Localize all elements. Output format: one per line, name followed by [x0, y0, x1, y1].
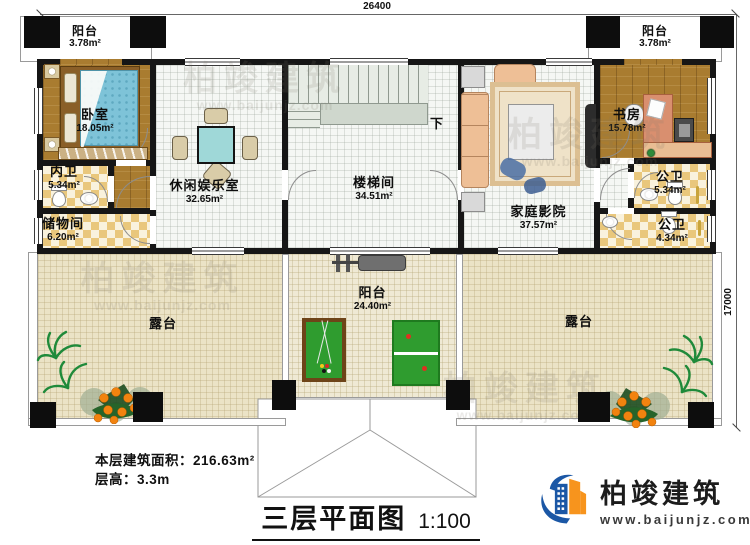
pool-table [302, 318, 346, 382]
stair-treads-lower [288, 103, 320, 128]
chair [242, 136, 258, 160]
room-label-storage: 储物间6.20m² [33, 217, 93, 243]
side-table [461, 66, 485, 88]
column [578, 392, 610, 422]
roof-outline [252, 396, 482, 500]
room-label-main-balcony: 阳台24.40m² [330, 286, 415, 312]
door-opening [60, 59, 122, 65]
window [707, 170, 716, 200]
room-label-public-bath-1: 公卫5.34m² [642, 170, 698, 196]
floor-height-line: 层高：3.3m [95, 468, 170, 488]
window [34, 88, 43, 134]
brand-logo-icon [538, 470, 592, 528]
dimension-right-value: 17000 [723, 272, 737, 332]
door-opening [624, 59, 682, 65]
column [30, 402, 56, 428]
room-label-terrace-left: 露台 [133, 317, 193, 332]
room-label-ensuite-bath: 内卫5.34m² [42, 165, 86, 191]
barbell-bar [332, 261, 360, 264]
window [707, 216, 716, 242]
column [688, 402, 714, 428]
drawing-title-text: 三层平面图 [261, 497, 406, 536]
wall [37, 208, 156, 214]
room-label-stairwell: 楼梯间34.51m² [334, 176, 414, 202]
ping-pong-table [392, 320, 440, 386]
window [546, 58, 592, 66]
brand-url: www.baijunjz.com [600, 512, 750, 527]
sink [602, 216, 618, 228]
sink [80, 192, 98, 205]
dimension-line-top [40, 14, 736, 15]
sofa [461, 92, 489, 188]
stair-landing [320, 103, 428, 125]
stair-treads [288, 65, 428, 105]
window [707, 78, 716, 134]
ping-pong-ball [406, 334, 411, 339]
wardrobe [58, 147, 148, 160]
floor-height-value: 3.3m [137, 472, 170, 487]
stairs-down-label: 下 [430, 113, 443, 132]
coffee-table [508, 104, 554, 160]
floor-area-value: 216.63m² [193, 453, 255, 468]
window [192, 247, 244, 255]
toilet [52, 191, 66, 207]
floor-area-label: 本层建筑面积： [95, 453, 193, 468]
tv-screen [585, 104, 596, 168]
dimension-top-value: 26400 [342, 1, 412, 12]
door-opening [116, 160, 146, 166]
window [498, 247, 558, 255]
game-table [197, 126, 235, 164]
room-label-bedroom: 卧室18.05m² [55, 108, 135, 134]
room-label-terrace-right: 露台 [549, 315, 609, 330]
side-table [461, 192, 485, 212]
room-label-public-bath-2: 公卫4.34m² [644, 218, 700, 244]
room-label-home-theater: 家庭影院37.57m² [496, 205, 581, 231]
dimension-line-right [736, 14, 737, 428]
drawing-scale: 1:100 [418, 510, 471, 534]
room-label-recreation-room: 休闲娱乐室32.65m² [152, 179, 257, 205]
door-opening [282, 170, 288, 200]
computer-screen [679, 124, 690, 137]
weight-bench [358, 255, 406, 271]
column [446, 380, 470, 410]
computer [674, 118, 694, 142]
column [700, 16, 734, 48]
pillow [64, 73, 77, 103]
drawing-title: 三层平面图 1:100 [252, 497, 480, 541]
column [586, 16, 620, 48]
door-opening [108, 176, 114, 202]
door-opening [150, 216, 156, 244]
floor-plan-canvas: 26400 17000 [0, 0, 750, 545]
room-label-study: 书房15.78m² [598, 108, 656, 134]
floor-area-line: 本层建筑面积：216.63m² [95, 449, 255, 469]
brand-logo: 柏竣建筑 www.baijunjz.com [538, 470, 750, 528]
balcony-door [330, 247, 430, 255]
window [185, 58, 240, 66]
balcony-divider-parapet [282, 254, 289, 386]
ping-pong-ball [422, 366, 427, 371]
door-opening [610, 158, 634, 164]
balcony-divider-parapet [456, 254, 463, 386]
brand-text-block: 柏竣建筑 www.baijunjz.com [600, 472, 750, 527]
billiard-balls [320, 364, 324, 368]
desk-plant [646, 148, 656, 158]
chair [172, 136, 188, 160]
column [272, 380, 296, 410]
floor-height-label: 层高： [95, 472, 137, 487]
chair [204, 108, 228, 124]
nightstand [44, 64, 60, 79]
column [130, 16, 166, 48]
column [133, 392, 163, 422]
room-label-balcony-top-right: 阳台3.78m² [615, 25, 695, 50]
brand-name: 柏竣建筑 [600, 472, 750, 511]
column [24, 16, 60, 48]
